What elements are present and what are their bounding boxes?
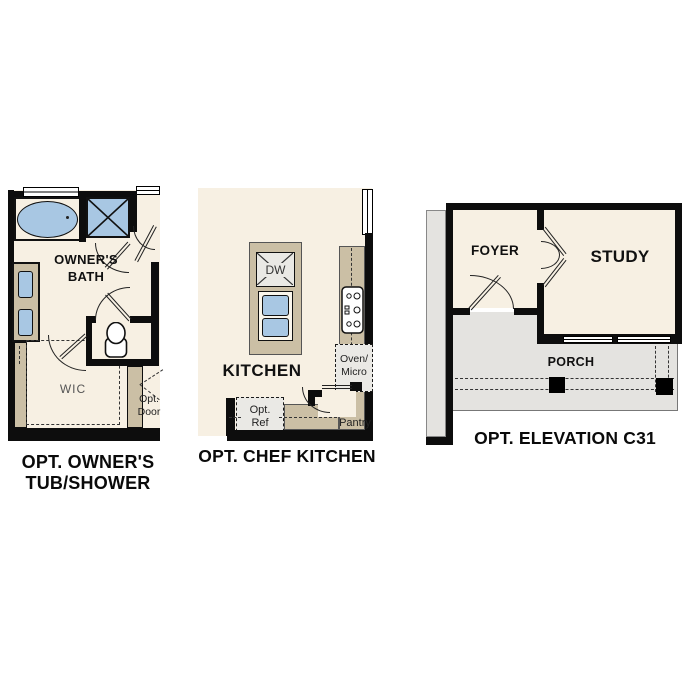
- vanity-sink: [18, 309, 33, 336]
- wall: [79, 191, 86, 242]
- side-wall-strip: [426, 210, 446, 437]
- bathtub: [17, 201, 78, 238]
- caption-chef-kitchen: OPT. CHEF KITCHEN: [190, 446, 384, 467]
- room-label-study: STUDY: [575, 247, 665, 267]
- window: [563, 336, 613, 343]
- owners-bath-line2: BATH: [28, 269, 144, 286]
- counter-dash: [279, 417, 337, 418]
- kitchen-sink-bowl: [262, 318, 289, 337]
- shower-x-icon: [88, 199, 128, 236]
- porch-post: [656, 378, 673, 395]
- floor-plan-canvas: OWNER'S BATH WIC: [0, 0, 687, 687]
- wall: [446, 308, 470, 315]
- caption-line1: OPT. OWNER'S: [2, 452, 174, 473]
- pantry-label: Pantry: [337, 417, 373, 429]
- wall: [8, 428, 160, 441]
- room-label-kitchen: KITCHEN: [202, 361, 322, 381]
- opt-door-line1: Opt.: [133, 393, 165, 406]
- wall: [446, 203, 453, 445]
- vanity-sink: [18, 271, 33, 298]
- opt-ref-line1: Opt.: [237, 404, 283, 417]
- oven-micro-line1: Oven/: [336, 353, 372, 366]
- oven-micro-line2: Micro: [336, 366, 372, 379]
- wall: [365, 233, 373, 433]
- cabinet-dash: [19, 346, 20, 364]
- caption-tub-shower: OPT. OWNER'S TUB/SHOWER: [2, 452, 174, 494]
- porch-post: [549, 377, 565, 393]
- wall: [675, 203, 682, 344]
- room-label-owners-bath: OWNER'S BATH: [28, 252, 144, 285]
- wall: [130, 316, 151, 323]
- kitchen-sink-bowl: [262, 295, 289, 316]
- opt-ref-line2: Ref: [237, 417, 283, 430]
- wall: [86, 359, 159, 366]
- window: [362, 189, 373, 235]
- ref-tick-dash: [229, 417, 241, 418]
- toilet: [102, 322, 130, 360]
- wall: [537, 207, 544, 230]
- window: [23, 187, 79, 197]
- wall: [151, 262, 159, 366]
- opt-door-line2: Door: [133, 406, 165, 419]
- opt-door-label: Opt. Door: [133, 393, 165, 418]
- room-label-porch: PORCH: [536, 355, 606, 369]
- window: [136, 186, 160, 195]
- cooktop: [341, 286, 364, 334]
- wall: [446, 203, 682, 210]
- caption-line2: TUB/SHOWER: [2, 473, 174, 494]
- wall: [227, 430, 373, 441]
- window: [617, 336, 671, 343]
- caption-elevation: OPT. ELEVATION C31: [443, 428, 687, 449]
- wic-label: WIC: [45, 382, 101, 396]
- dishwasher-label: DW: [265, 263, 287, 277]
- room-label-foyer: FOYER: [455, 243, 535, 258]
- owners-bath-line1: OWNER'S: [28, 252, 144, 269]
- dishwasher: DW: [256, 252, 295, 287]
- tub-drain: [66, 216, 69, 219]
- shower: [86, 197, 130, 238]
- study-floor: [537, 210, 675, 334]
